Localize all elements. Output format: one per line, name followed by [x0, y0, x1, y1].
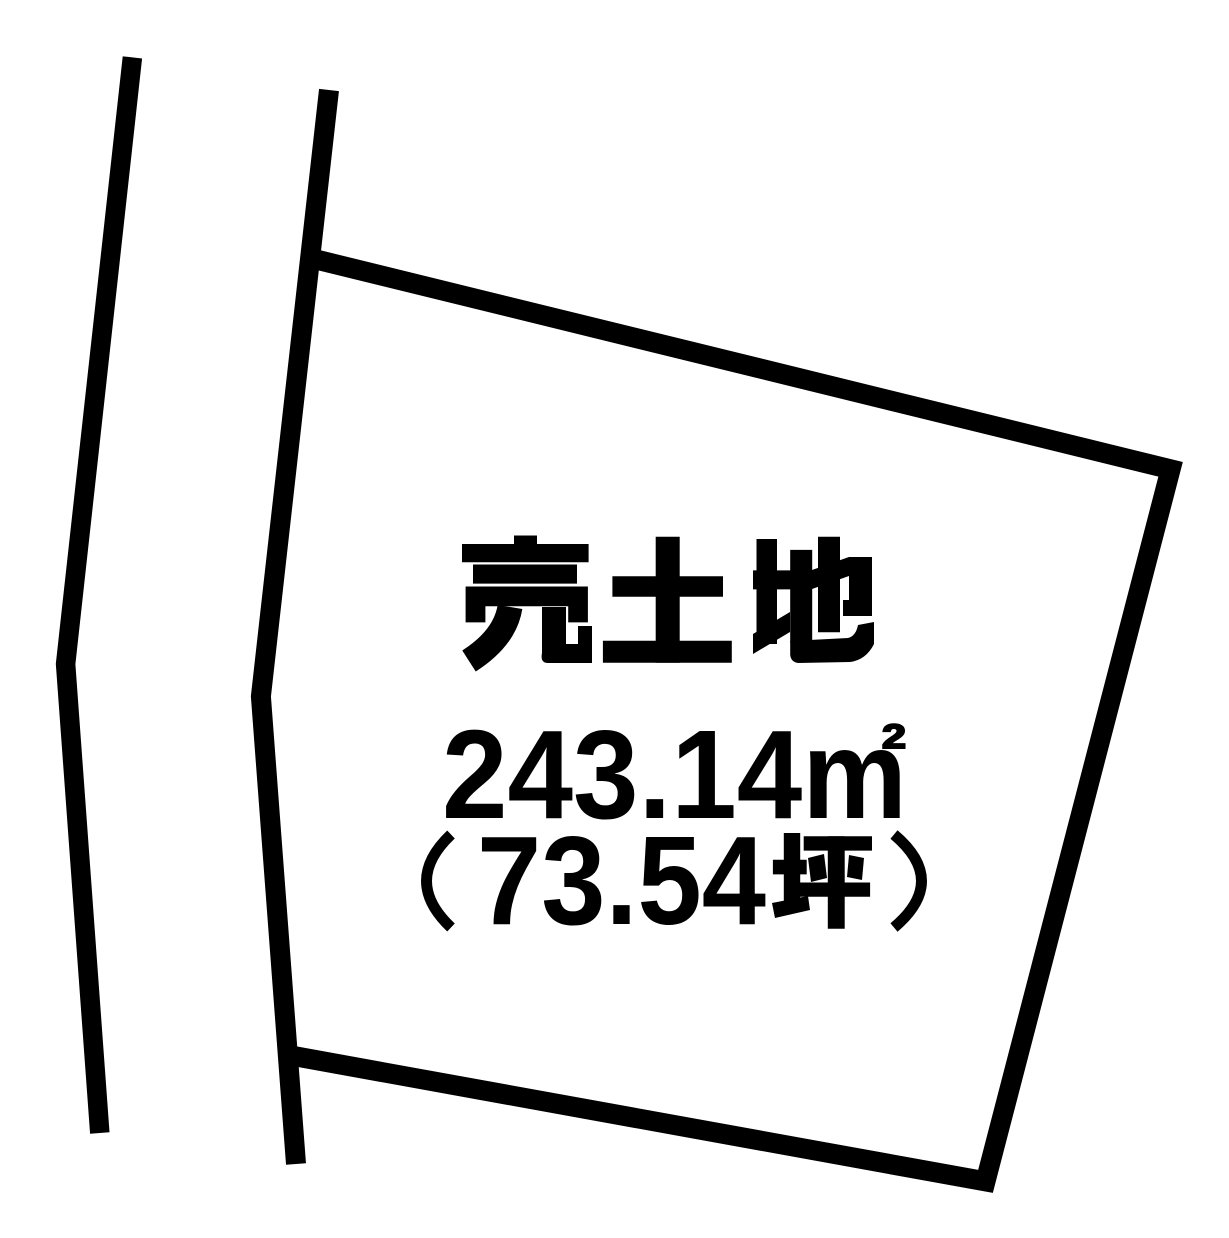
- svg-text:73.54: 73.54: [477, 809, 766, 951]
- svg-text:2: 2: [882, 718, 906, 756]
